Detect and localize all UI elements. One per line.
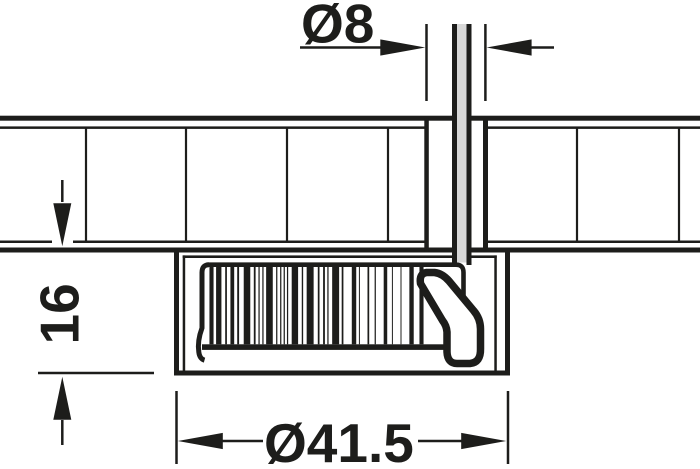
svg-text:16: 16 [29,283,91,344]
svg-text:Ø41.5: Ø41.5 [264,412,414,469]
